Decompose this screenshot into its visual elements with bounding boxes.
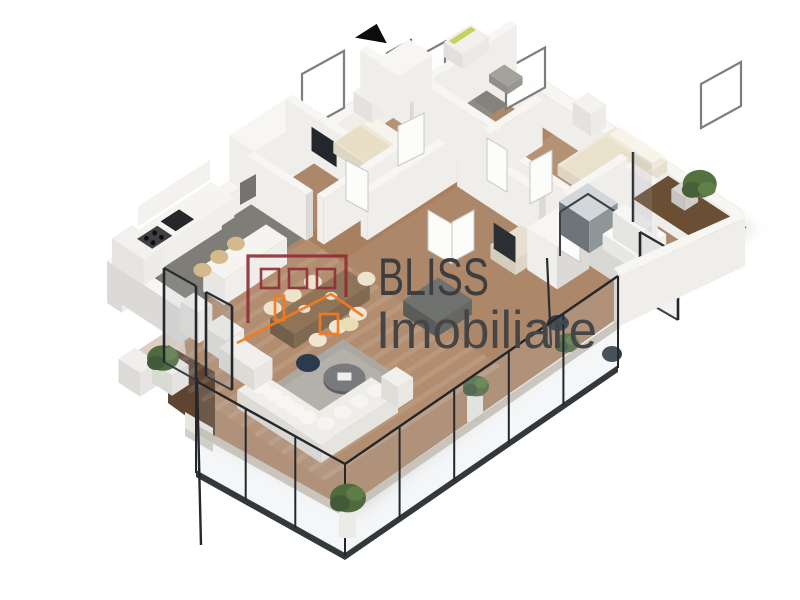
svg-text:BLISS: BLISS	[378, 248, 489, 307]
svg-text:Imobiliare: Imobiliare	[376, 301, 597, 360]
